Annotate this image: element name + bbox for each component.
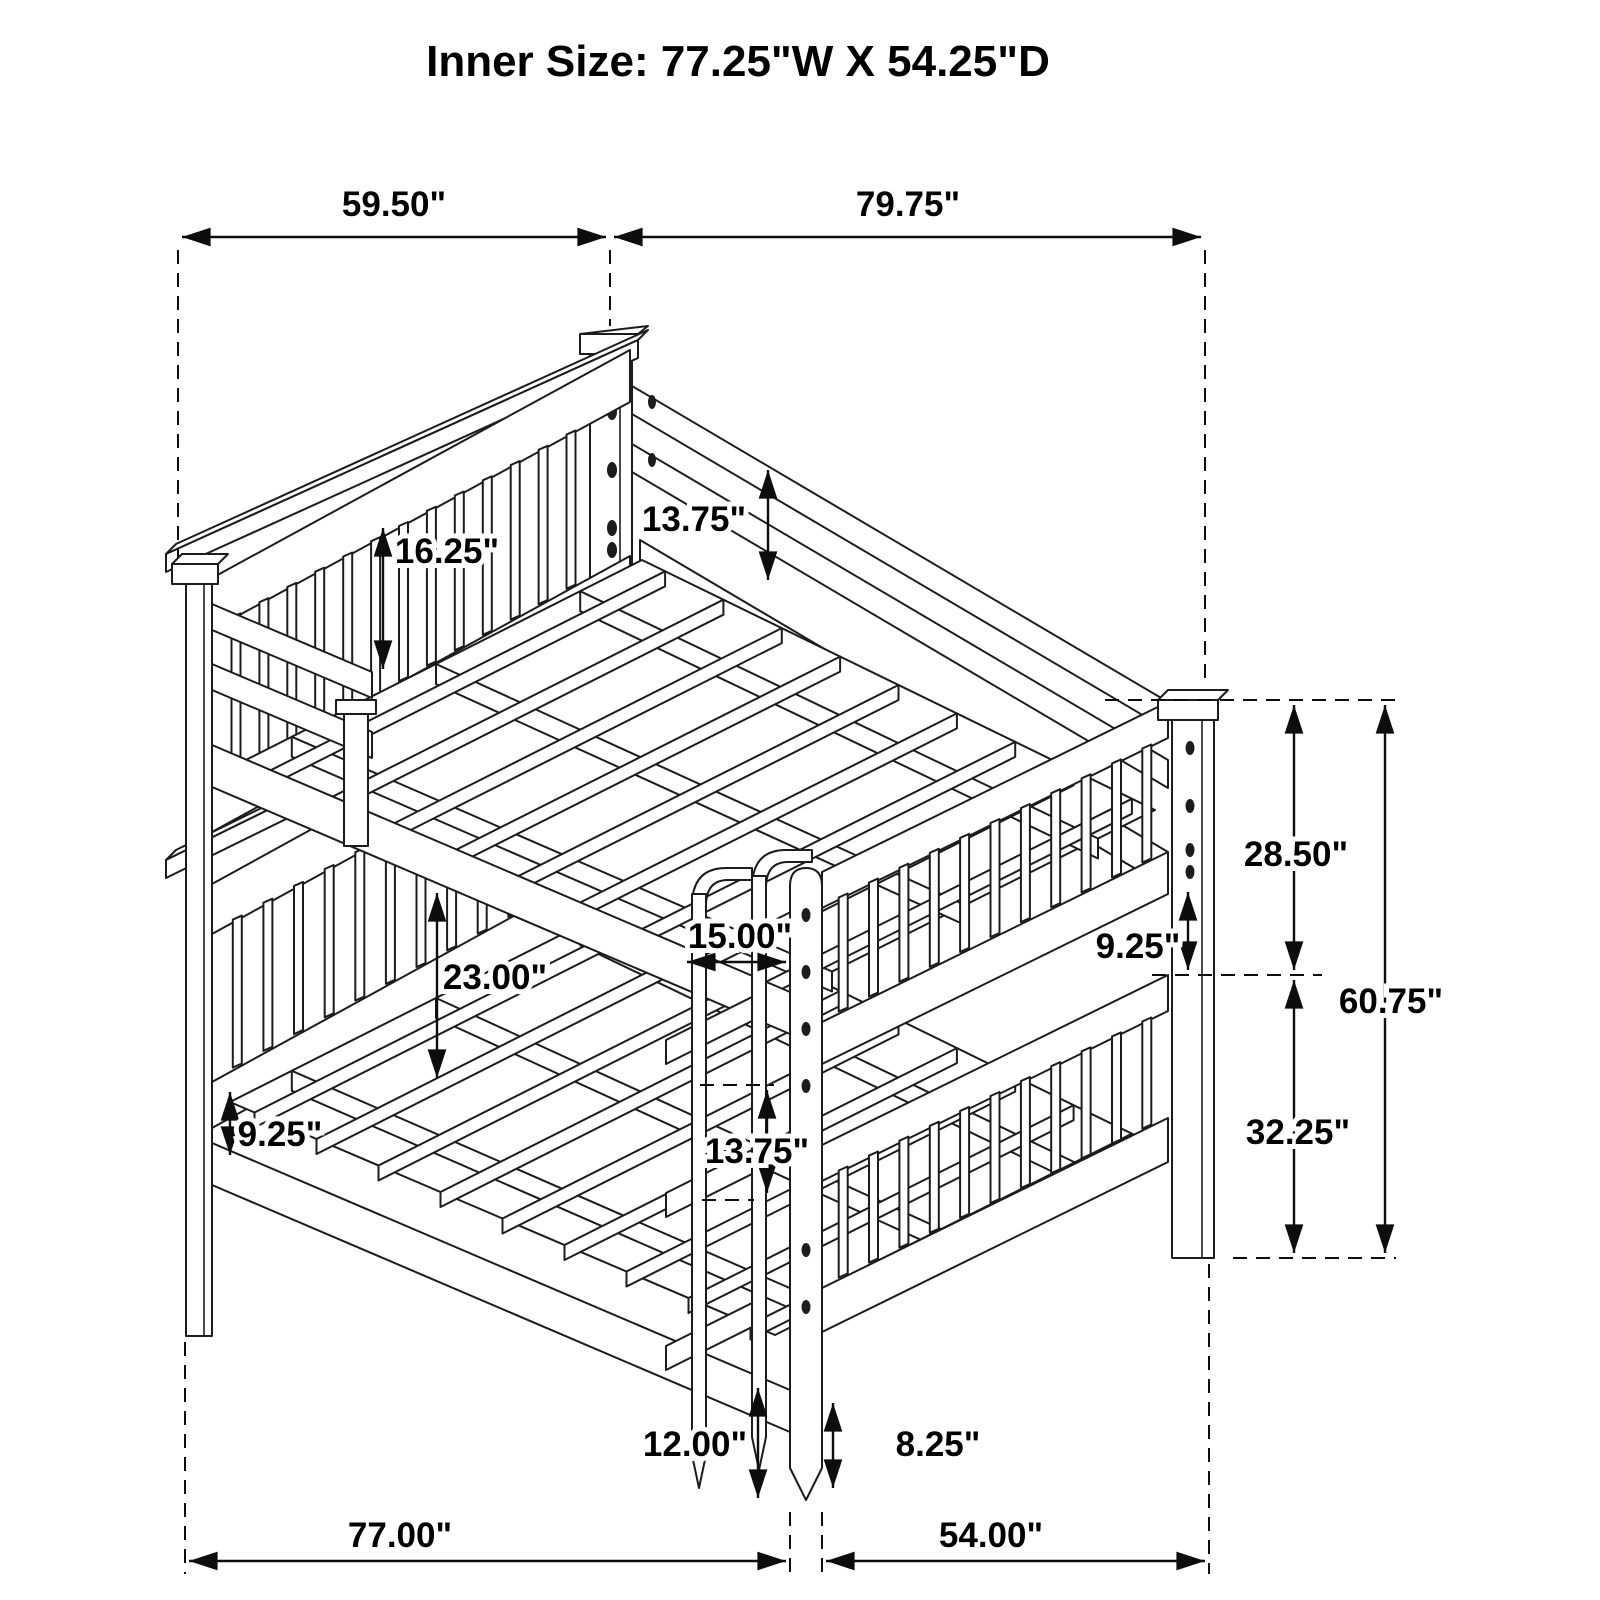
dim-lower-section-height: 32.25" [1246, 980, 1350, 1253]
dim-label: 54.00" [939, 1516, 1043, 1555]
dim-label: 28.50" [1244, 835, 1348, 874]
dim-label: 13.75" [642, 500, 746, 539]
dim-leg-clearance-height: 8.25" [833, 1403, 980, 1488]
dim-label: 59.50" [342, 185, 446, 224]
dim-label: 8.25" [896, 1425, 981, 1464]
dim-label: 9.25" [238, 1115, 323, 1154]
dim-base-width: 77.00" [189, 1516, 786, 1561]
dim-label: 12.00" [643, 1425, 747, 1464]
dim-label: 15.00" [688, 917, 792, 956]
dim-label: 32.25" [1246, 1113, 1350, 1152]
dim-label: 77.00" [348, 1516, 452, 1555]
dim-top-length: 79.75" [614, 185, 1201, 237]
bunk-bed-dimension-diagram: 59.50" 79.75" 16.25" 13.75" 23.00" 15.00… [0, 0, 1600, 1600]
dim-label: 60.75" [1339, 982, 1443, 1021]
dim-label: 9.25" [1096, 927, 1181, 966]
dim-top-width: 59.50" [182, 185, 606, 237]
dim-overall-height: 60.75" [1339, 705, 1443, 1253]
dim-label: 16.25" [395, 532, 499, 571]
dim-ladder-width: 15.00" [687, 917, 792, 962]
dim-label: 13.75" [705, 1132, 809, 1171]
dim-upper-section-height: 28.50" [1244, 705, 1348, 970]
page-title: Inner Size: 77.25"W X 54.25"D [426, 37, 1050, 86]
dim-base-depth: 54.00" [826, 1516, 1205, 1561]
post-front-right [790, 868, 822, 1500]
dim-label: 23.00" [443, 958, 547, 997]
dim-label: 79.75" [856, 185, 960, 224]
